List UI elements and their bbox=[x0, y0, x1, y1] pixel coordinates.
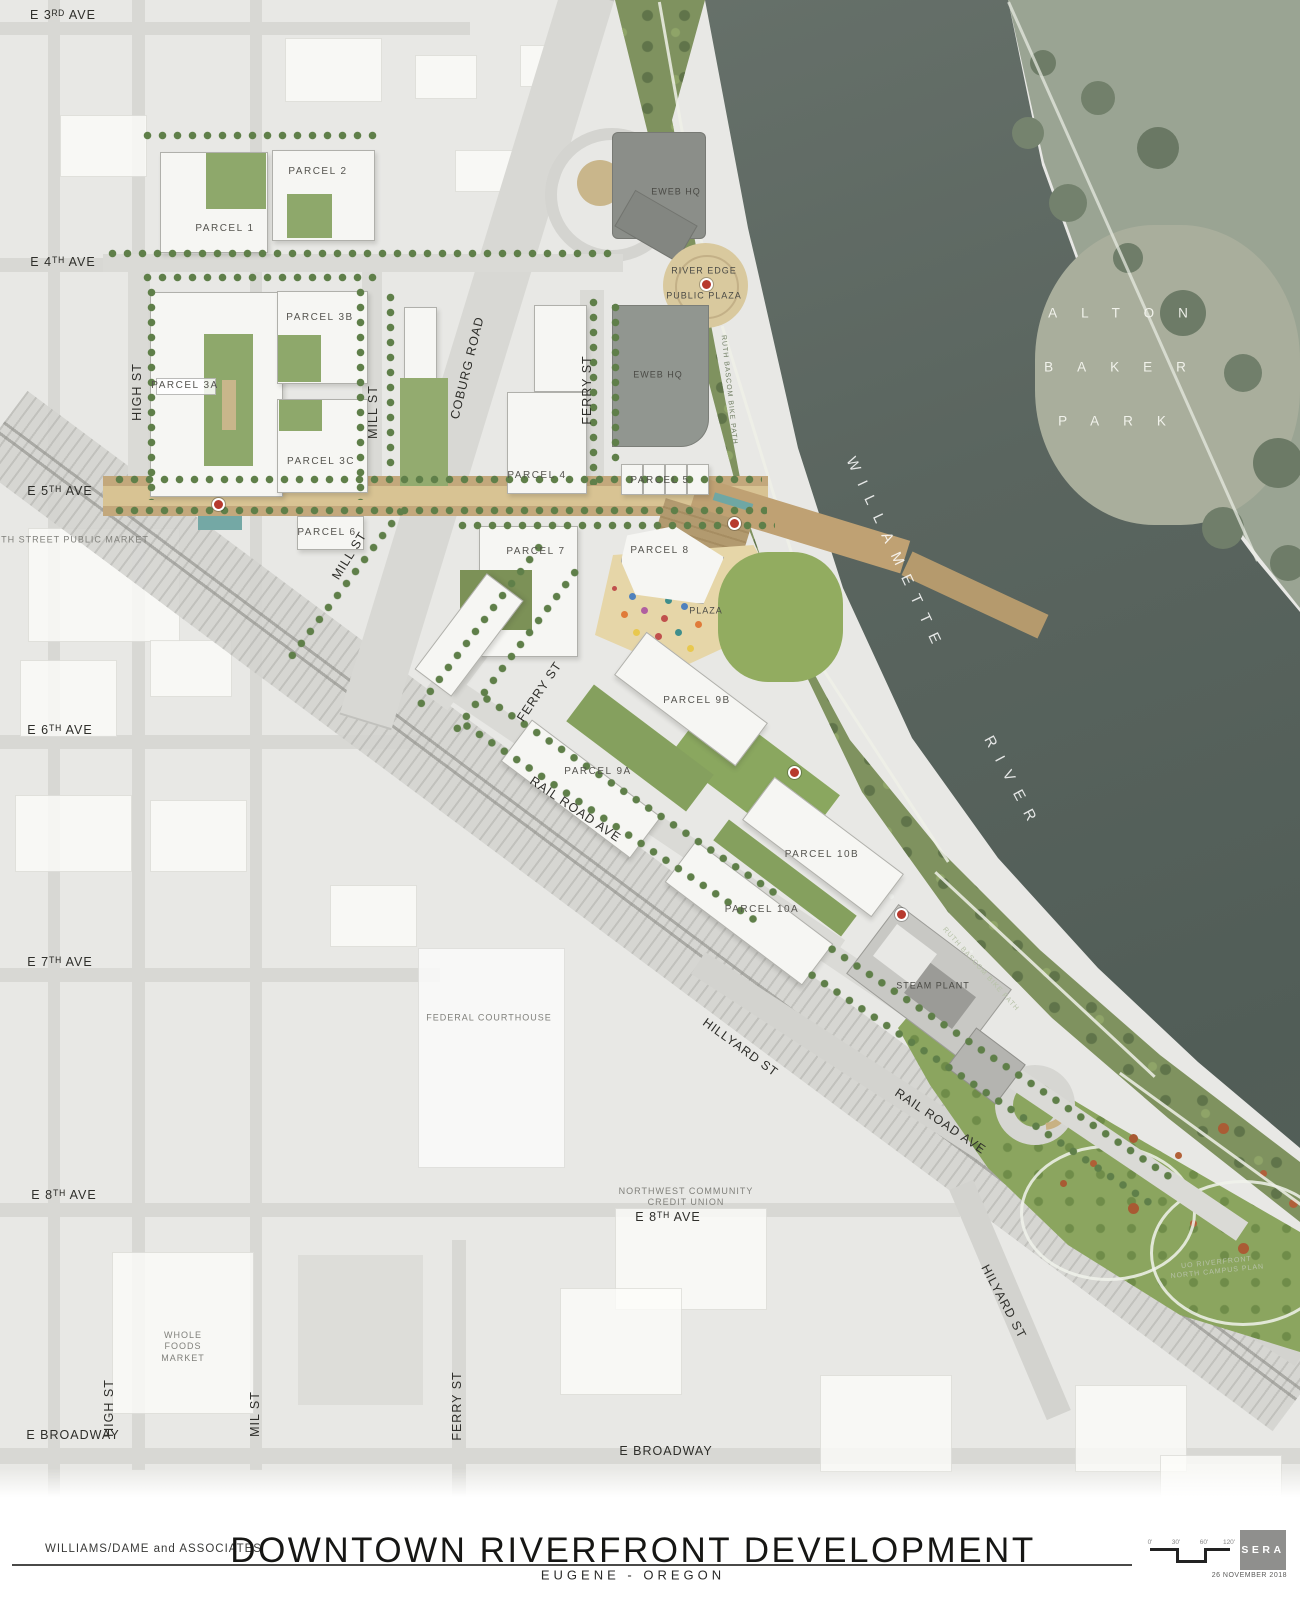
context-building bbox=[15, 795, 132, 872]
place-label: RIVER EDGE bbox=[671, 265, 737, 276]
pocket-park bbox=[400, 378, 448, 486]
scale-bar bbox=[1204, 1548, 1230, 1551]
parking-lot bbox=[298, 1255, 423, 1405]
townhome-row bbox=[404, 307, 437, 381]
parcel-label: PARCEL 6 bbox=[297, 527, 356, 540]
parcel-label: PARCEL 10B bbox=[785, 849, 859, 862]
gateway-marker bbox=[895, 908, 908, 921]
street-label: HIGH ST bbox=[102, 1379, 118, 1437]
gateway-marker bbox=[212, 498, 225, 511]
park-label: BAKER bbox=[1044, 360, 1210, 377]
parcel-label: PARCEL 10A bbox=[725, 904, 799, 917]
parcel-label: PARCEL 3C bbox=[287, 456, 355, 469]
street-label: HIGH ST bbox=[130, 363, 146, 421]
street-trees bbox=[355, 285, 366, 500]
plaza-umbrellas bbox=[612, 586, 617, 591]
street-trees bbox=[112, 505, 767, 516]
sera-logo-text: SERA bbox=[1241, 1544, 1284, 1556]
parcel-1-courtyard bbox=[206, 153, 266, 209]
place-label: EWEB HQ bbox=[651, 186, 701, 197]
context-building bbox=[150, 640, 232, 697]
context-building bbox=[150, 800, 247, 872]
place-label: PUBLIC PLAZA bbox=[666, 290, 742, 301]
street-label: E BROADWAY bbox=[619, 1444, 712, 1460]
street-label: E 5ᵀᴴ AVE bbox=[27, 484, 92, 500]
federal-courthouse-building bbox=[418, 948, 565, 1168]
parcel-label: PARCEL 3B bbox=[286, 312, 353, 325]
street-label: E 8ᵀᴴ AVE bbox=[635, 1210, 700, 1226]
street-trees bbox=[610, 300, 621, 465]
street-label: MILL ST bbox=[366, 385, 382, 439]
parcel-label: PARCEL 9A bbox=[564, 766, 631, 779]
scale-tick-label: 60' bbox=[1200, 1539, 1208, 1546]
plaza-lawn bbox=[718, 552, 843, 682]
parcel-3c-courtyard bbox=[279, 400, 322, 431]
place-label: WHOLE FOODS MARKET bbox=[161, 1330, 205, 1364]
context-building bbox=[60, 115, 147, 177]
parcel-label: PARCEL 1 bbox=[195, 223, 254, 236]
gateway-marker bbox=[700, 278, 713, 291]
context-building bbox=[330, 885, 417, 947]
street-trees bbox=[146, 285, 157, 500]
road-e3rd bbox=[0, 22, 470, 35]
parcel-4-building bbox=[534, 305, 587, 392]
place-label: 5TH STREET PUBLIC MARKET bbox=[0, 534, 149, 545]
park-label: PARK bbox=[1058, 414, 1190, 431]
parcel-label: PARCEL 9B bbox=[663, 695, 730, 708]
place-label: NORTHWEST COMMUNITY CREDIT UNION bbox=[619, 1186, 754, 1209]
scale-bar bbox=[1150, 1548, 1178, 1551]
street-trees bbox=[455, 520, 775, 531]
sera-logo: SERA bbox=[1240, 1530, 1286, 1570]
context-building bbox=[415, 55, 477, 99]
context-building bbox=[560, 1288, 682, 1395]
street-label: FERRY ST bbox=[580, 355, 596, 424]
street-label: E 4ᵀᴴ AVE bbox=[30, 255, 95, 271]
scale-tick-label: 30' bbox=[1172, 1539, 1180, 1546]
sheet-title: DOWNTOWN RIVERFRONT DEVELOPMENT bbox=[230, 1531, 1035, 1571]
parcel-label: PARCEL 8 bbox=[630, 545, 689, 558]
street-label: E 6ᵀᴴ AVE bbox=[27, 723, 92, 739]
parcel-label: PARCEL 7 bbox=[506, 546, 565, 559]
street-trees bbox=[105, 248, 615, 259]
parcel-label: PARCEL 4 bbox=[507, 470, 566, 483]
place-label: EWEB HQ bbox=[633, 369, 683, 380]
place-label: FEDERAL COURTHOUSE bbox=[426, 1012, 552, 1023]
street-trees bbox=[140, 272, 380, 283]
road-high-st bbox=[132, 0, 145, 1470]
parcel-label: PARCEL 2 bbox=[288, 166, 347, 179]
place-label: STEAM PLANT bbox=[896, 980, 970, 991]
gateway-marker bbox=[728, 517, 741, 530]
water-feature bbox=[198, 516, 242, 530]
street-label: E 3ᴿᴰ AVE bbox=[30, 8, 96, 24]
scale-bar bbox=[1176, 1560, 1206, 1563]
context-building bbox=[285, 38, 382, 102]
sheet-subtitle: EUGENE - OREGON bbox=[541, 1568, 725, 1583]
street-trees bbox=[385, 290, 396, 470]
street-label: E 7ᵀᴴ AVE bbox=[27, 955, 92, 971]
street-trees bbox=[140, 130, 380, 141]
site-plan-sheet: E 3ᴿᴰ AVEE 4ᵀᴴ AVEE 5ᵀᴴ AVEE 6ᵀᴴ AVEE 7ᵀ… bbox=[0, 0, 1300, 1600]
park-label: ALTON bbox=[1048, 306, 1212, 323]
place-label: PLAZA bbox=[689, 605, 723, 616]
parcel-label: PARCEL 5 bbox=[630, 475, 689, 488]
sheet-date: 26 NOVEMBER 2018 bbox=[1212, 1572, 1287, 1579]
road-ferry-south bbox=[452, 1240, 466, 1500]
parcel-label: PARCEL 3A bbox=[151, 380, 218, 393]
road-vertical bbox=[48, 0, 60, 1500]
parcel-2-courtyard bbox=[287, 194, 332, 238]
street-label: FERRY ST bbox=[450, 1371, 466, 1440]
context-building bbox=[820, 1375, 952, 1472]
scale-tick-label: 120' bbox=[1223, 1539, 1235, 1546]
gateway-marker bbox=[788, 766, 801, 779]
sheet-fade bbox=[0, 1468, 1300, 1502]
courtyard-path bbox=[222, 380, 236, 430]
street-label: E 8ᵀᴴ AVE bbox=[31, 1188, 96, 1204]
scale-tick-label: 0' bbox=[1148, 1539, 1153, 1546]
street-label: MIL ST bbox=[248, 1391, 264, 1437]
parcel-3b-courtyard bbox=[278, 335, 321, 382]
